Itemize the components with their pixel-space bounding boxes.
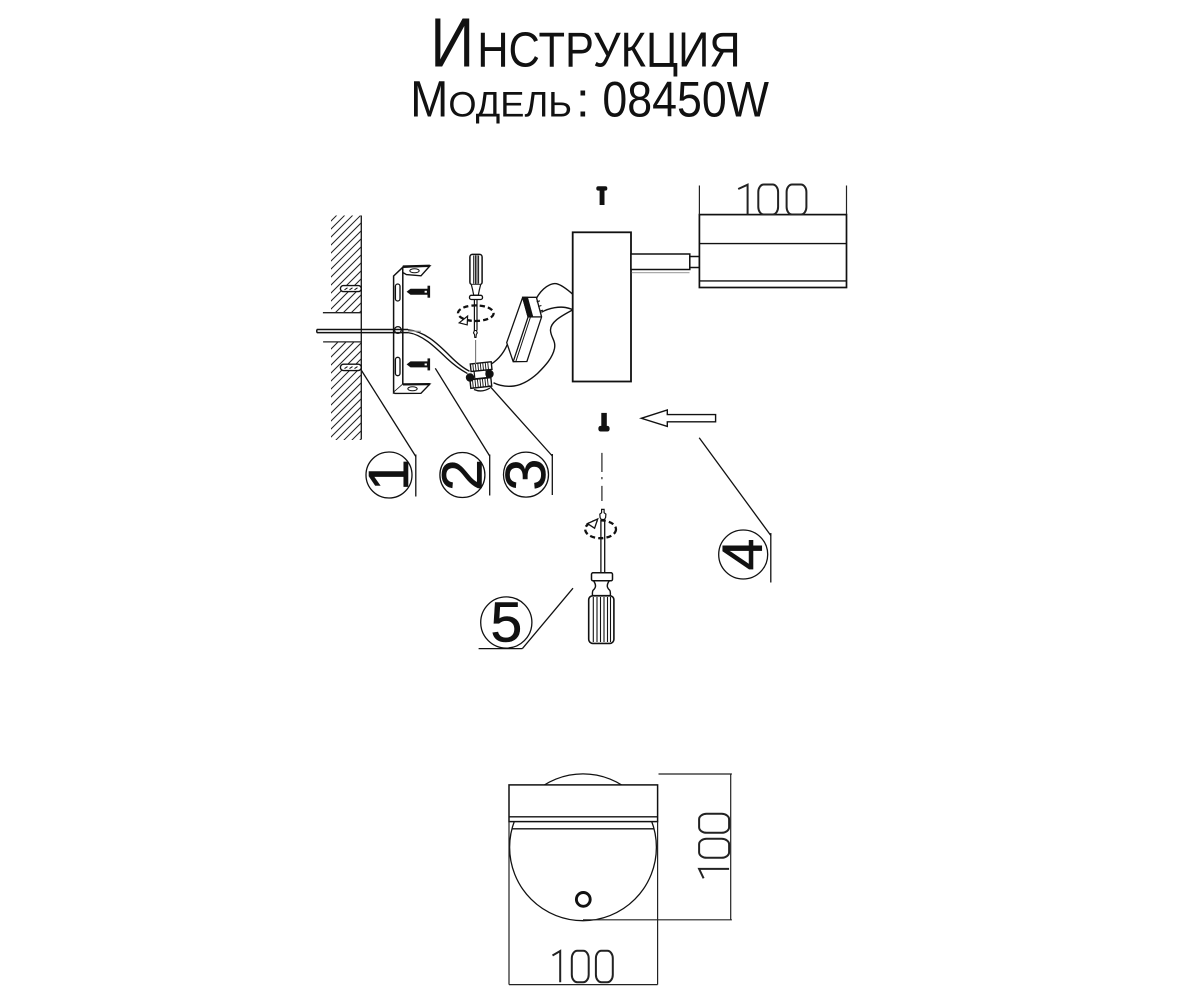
svg-text:1: 1 (357, 459, 421, 491)
svg-text:08450W: 08450W (602, 70, 769, 127)
svg-text::: : (576, 73, 590, 127)
svg-text:5: 5 (490, 591, 522, 655)
svg-text:НСТРУКЦИЯ: НСТРУКЦИЯ (477, 23, 741, 78)
svg-text:3: 3 (494, 459, 558, 491)
svg-text:ОДЕЛЬ: ОДЕЛЬ (448, 84, 572, 124)
svg-text:2: 2 (430, 459, 494, 491)
svg-text:4: 4 (711, 539, 775, 571)
svg-text:М: М (410, 70, 448, 127)
